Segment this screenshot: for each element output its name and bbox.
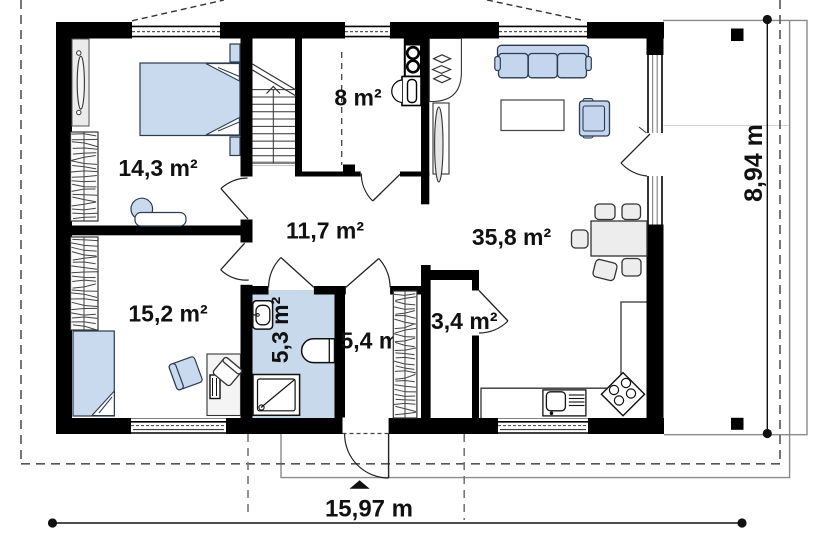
svg-text:15,2 m²: 15,2 m²	[128, 301, 208, 327]
svg-text:14,3 m²: 14,3 m²	[118, 155, 198, 181]
svg-text:8,94 m: 8,94 m	[740, 124, 768, 202]
svg-text:5,3 m²: 5,3 m²	[267, 296, 293, 363]
svg-text:8 m²: 8 m²	[334, 85, 382, 111]
svg-text:15,97 m: 15,97 m	[325, 496, 413, 523]
svg-text:11,7 m²: 11,7 m²	[286, 218, 364, 244]
svg-text:3,4 m²: 3,4 m²	[431, 308, 498, 334]
svg-text:35,8 m²: 35,8 m²	[472, 224, 552, 250]
